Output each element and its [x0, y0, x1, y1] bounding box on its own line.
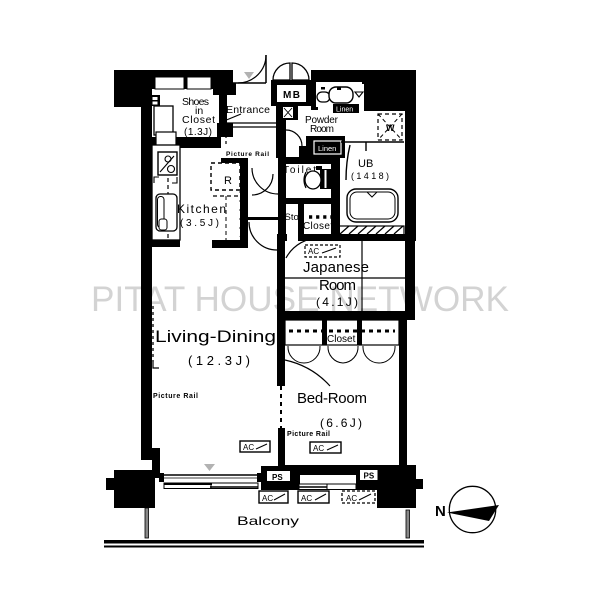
svg-text:(1.3J): (1.3J)	[184, 127, 212, 138]
svg-text:(12.3J): (12.3J)	[188, 353, 250, 368]
svg-text:Picture Rail: Picture Rail	[153, 393, 198, 400]
svg-text:AC: AC	[262, 494, 273, 503]
svg-text:Room: Room	[319, 277, 356, 294]
svg-text:Room: Room	[310, 124, 334, 135]
svg-text:Sto.: Sto.	[285, 212, 302, 223]
svg-text:Linen: Linen	[336, 107, 353, 114]
svg-text:Entrance: Entrance	[226, 104, 270, 116]
svg-text:Japanese: Japanese	[303, 259, 369, 276]
svg-text:(4.1J): (4.1J)	[316, 295, 358, 309]
svg-text:Closet: Closet	[327, 334, 356, 345]
svg-text:Living-Dining: Living-Dining	[155, 327, 276, 346]
svg-text:Picture Rail: Picture Rail	[226, 151, 269, 158]
svg-text:AC: AC	[301, 494, 312, 503]
svg-text:Linen: Linen	[318, 144, 336, 153]
svg-text:W: W	[386, 123, 395, 133]
svg-text:Closet: Closet	[182, 114, 215, 126]
svg-text:PS: PS	[364, 472, 375, 481]
svg-text:AC: AC	[346, 494, 357, 503]
svg-text:AC: AC	[313, 444, 324, 453]
svg-text:Balcony: Balcony	[237, 514, 299, 528]
svg-text:AC: AC	[308, 247, 319, 256]
svg-text:(6.6J): (6.6J)	[320, 416, 362, 430]
svg-text:Picture Rail: Picture Rail	[287, 431, 330, 438]
svg-text:Bed-Room: Bed-Room	[297, 390, 367, 407]
svg-text:N: N	[435, 503, 446, 520]
svg-text:PS: PS	[272, 473, 283, 482]
svg-text:UB: UB	[358, 158, 373, 170]
svg-text:R: R	[224, 175, 232, 187]
svg-text:AC: AC	[243, 443, 254, 452]
svg-text:Closet: Closet	[303, 221, 333, 232]
